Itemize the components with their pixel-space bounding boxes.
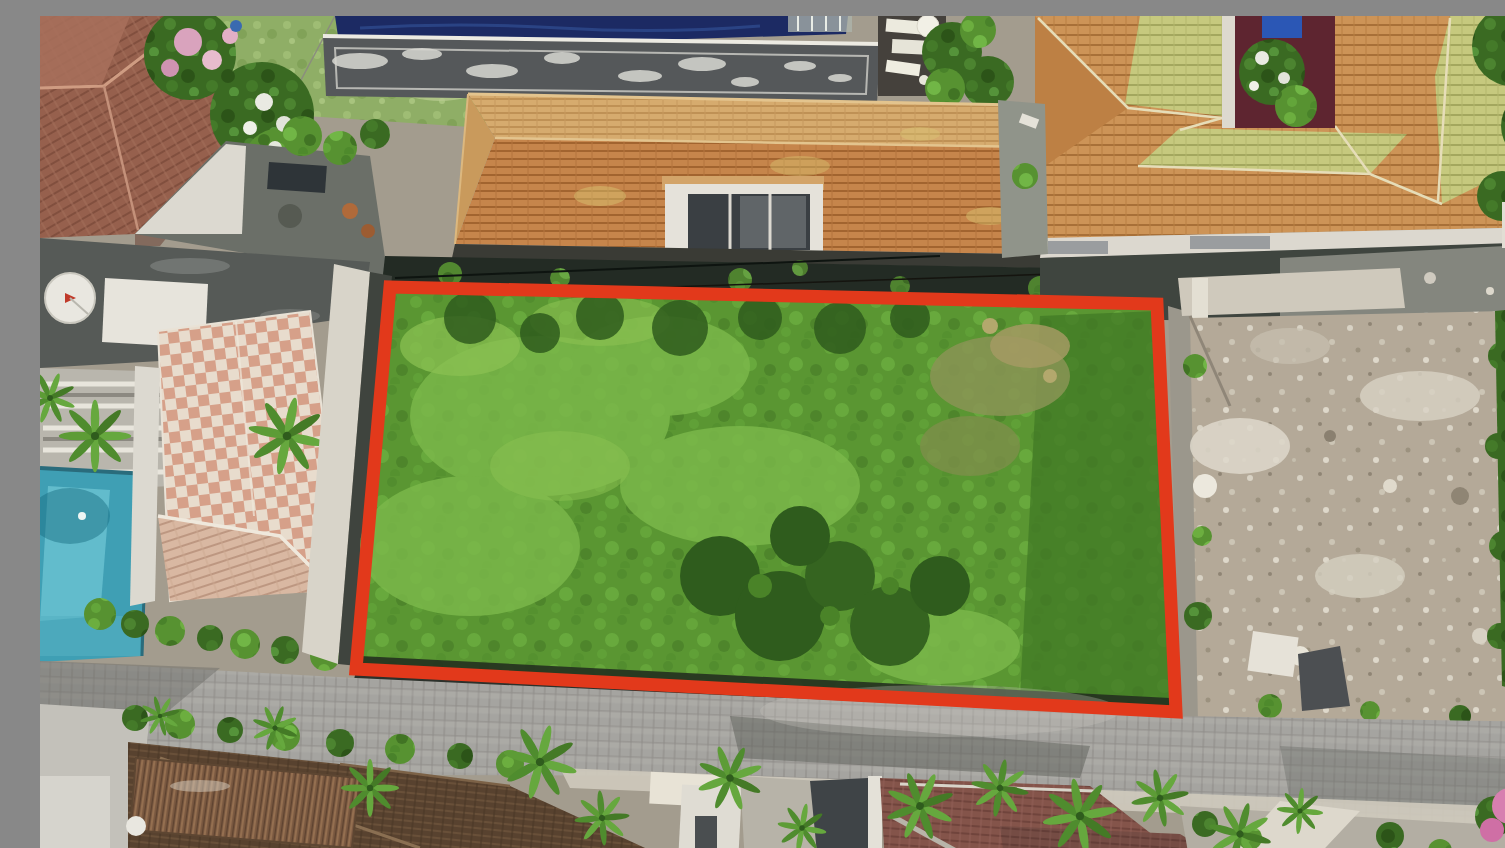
- satellite-dish: [45, 273, 95, 323]
- blue-awning: [1262, 16, 1302, 38]
- side-terrace: [998, 100, 1048, 258]
- roof-dormer: [662, 176, 824, 254]
- palm-tree: [341, 759, 399, 817]
- aerial-photo: Aerial drone photo of a vacant overgrown…: [40, 16, 1505, 848]
- vacant-plot: [352, 287, 1179, 734]
- satellite-dish-small: [126, 816, 146, 836]
- dirt-lot: [1168, 268, 1505, 728]
- white-crate: [1247, 631, 1298, 677]
- solar-panel: [267, 162, 327, 193]
- courtyard: [1222, 16, 1335, 128]
- palm-tree: [59, 400, 132, 473]
- blue-tarp: [230, 20, 242, 32]
- aerial-photo-canvas: [40, 16, 1505, 848]
